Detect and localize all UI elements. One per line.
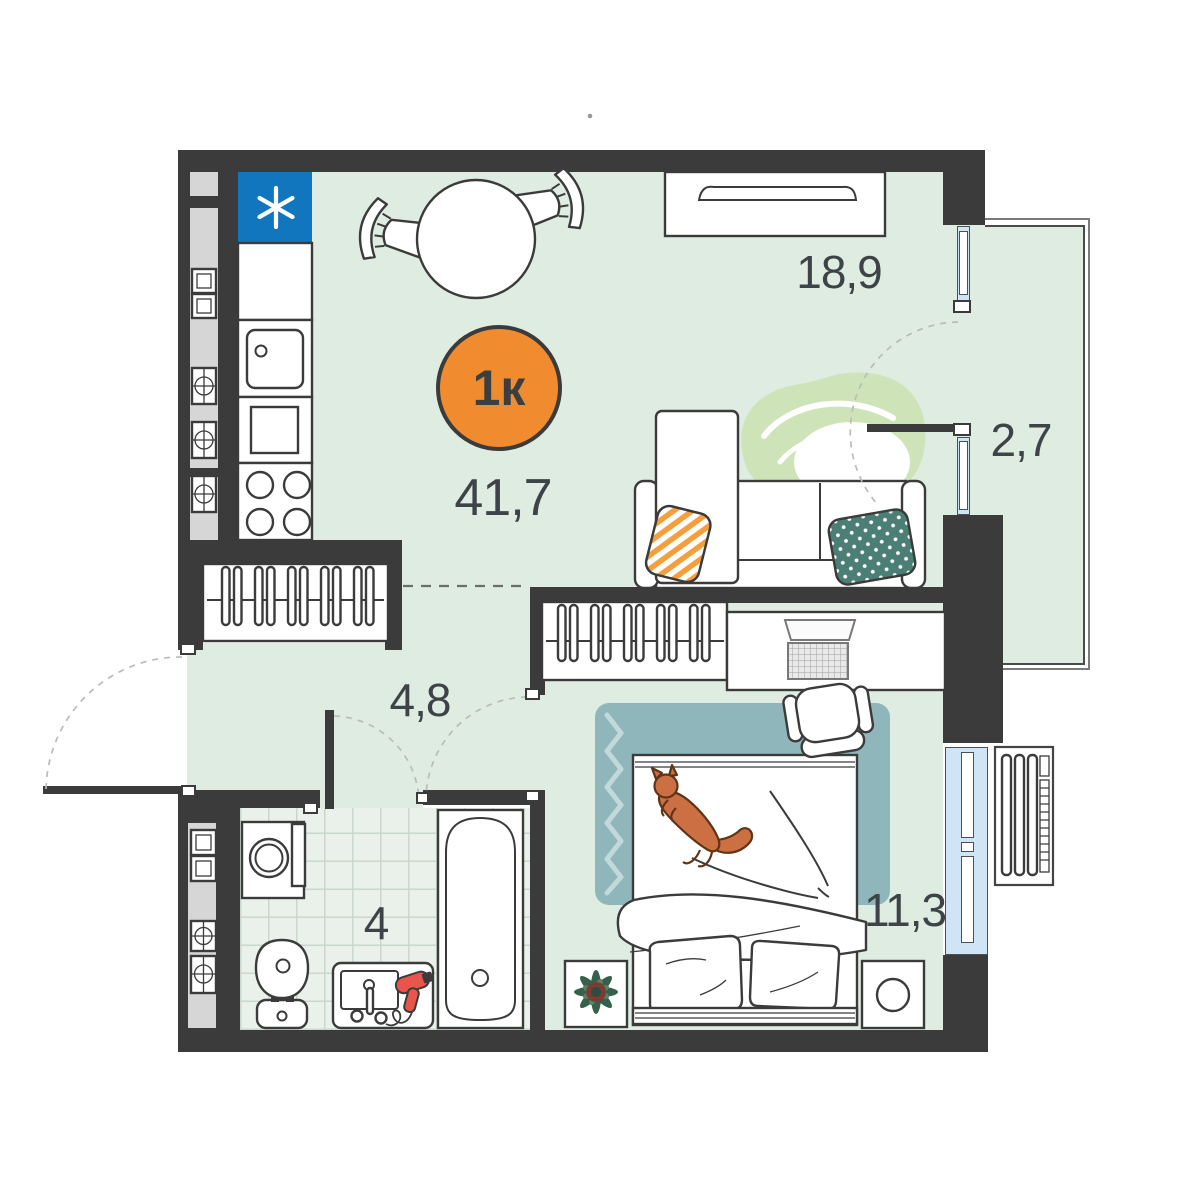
door-jamb	[416, 792, 429, 804]
bathtub	[438, 810, 523, 1028]
ac-unit	[995, 747, 1053, 885]
door-jamb	[525, 688, 540, 700]
window-handle	[953, 300, 971, 313]
area-label-hallway: 4,8	[390, 673, 451, 727]
floorplan: 18,9 2,7 4,8 4 11,3 1к 41,7	[0, 0, 1200, 1200]
sink-vanity	[333, 963, 435, 1028]
washing-machine	[242, 822, 305, 898]
door-jamb	[303, 802, 318, 814]
bed	[618, 755, 866, 1025]
dining-table	[417, 180, 535, 298]
laptop-icon	[785, 620, 855, 679]
apartment-type-badge: 1к	[436, 325, 562, 451]
window-handle	[953, 423, 971, 436]
toilet	[256, 940, 308, 1028]
tv-stand	[665, 172, 885, 236]
total-area-label: 41,7	[454, 468, 551, 528]
area-label-living: 18,9	[796, 245, 882, 299]
door-swing-arc-entry	[46, 657, 182, 790]
pillow-dotted	[827, 508, 917, 587]
wardrobe-bedroom	[542, 602, 727, 680]
balcony-door-leaf	[867, 424, 957, 432]
furniture-layer	[0, 0, 1200, 1200]
wardrobe-hallway	[203, 564, 388, 641]
area-label-balcony: 2,7	[991, 413, 1052, 467]
door-jamb	[525, 790, 540, 802]
door-jamb	[181, 785, 196, 797]
area-label-bathroom: 4	[364, 896, 389, 950]
area-label-bedroom: 11,3	[864, 883, 946, 937]
apartment-type-label: 1к	[473, 359, 526, 417]
door-jamb	[180, 643, 196, 655]
page-dot	[588, 114, 593, 119]
fridge	[238, 172, 312, 243]
door-swing-arc-bathroom	[334, 716, 419, 800]
plant	[565, 961, 627, 1027]
desk	[727, 612, 945, 690]
nightstand	[862, 961, 924, 1028]
kitchen-counter	[238, 243, 312, 463]
stove	[238, 463, 312, 540]
